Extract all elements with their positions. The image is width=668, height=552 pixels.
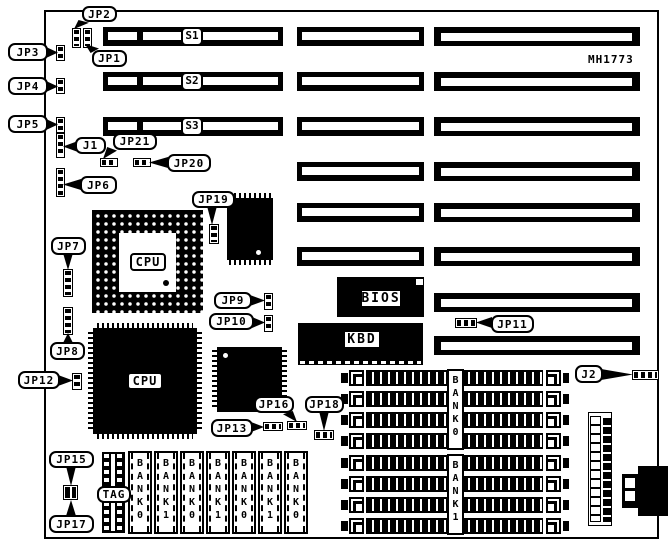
callout-jp7: JP7 [51,237,86,255]
jumper-jp7-block [63,269,73,297]
slot-s3-label: S3 [181,117,203,136]
sram-slot: BANK0 [284,451,308,534]
callout-jp20: JP20 [167,154,211,172]
slot-contact-stripe [143,32,278,40]
callout-jp12: JP12 [18,371,60,389]
power-connector [588,412,612,526]
slot-contact-stripe [108,32,137,40]
slot-bar [434,162,640,181]
keyboard-din-connector [638,466,668,516]
jumper-jp16-block [287,421,307,430]
qfp-pins [229,260,271,265]
jumper-jp2-block [72,28,81,48]
slot-bar [297,27,424,46]
slot-bar [297,162,424,181]
slot-bar [434,336,640,355]
bank-label: BANK1 [213,457,224,522]
bank-label: BANK0 [135,457,146,522]
slot-bar [434,117,640,136]
qfp-pins [97,434,193,439]
slot-contact-stripe [108,77,137,85]
qfp-pins [197,332,202,430]
cpu-chip-label: CPU [127,372,163,390]
callout-jp2: JP2 [82,6,117,22]
bank-label: BANK0 [187,457,198,522]
sram-slot: BANK0 [180,451,204,534]
slot-bar [434,247,640,266]
cpu-socket-label: CPU [130,253,166,271]
slot-contact-stripe [143,122,278,130]
callout-jp21: JP21 [113,133,157,150]
sram-slot: BANK0 [232,451,256,534]
part-number: MH1773 [588,53,634,66]
callout-jp10: JP10 [209,313,254,330]
pin1-marker [163,280,169,286]
callout-jp9: JP9 [214,292,252,309]
simm-bank0-label: BANK0 [447,369,464,450]
jumper-jp3-block [56,45,65,61]
slot-bar [434,27,640,46]
jumper-jp11-block [455,318,477,328]
slot-bar [297,72,424,91]
slot-bar [297,117,424,136]
jumper-j2-block [632,370,659,380]
keyboard-din-lugs [622,474,640,508]
bank-label: BANK1 [161,457,172,522]
jumper-jp13-block [263,422,283,431]
sram-slot: BANK1 [206,451,230,534]
callout-jp17: JP17 [49,515,94,533]
callout-j1: J1 [75,137,106,154]
callout-jp3: JP3 [8,43,48,61]
sram-slot: BANK1 [154,451,178,534]
jumper-jp15-jp17-block [63,485,78,500]
jumper-jp8-block [63,307,73,335]
jumper-j1-block [56,133,65,158]
jumper-jp18-block [314,430,334,440]
qfp-chip-small [227,198,273,260]
slot-bar [297,203,424,222]
callout-jp18: JP18 [305,396,344,413]
jumper-jp4-block [56,78,65,94]
slot-bar [434,72,640,91]
jumper-jp19-block [209,224,219,244]
slot-contact-stripe [143,77,278,85]
pin1-marker [223,353,228,358]
bank-label: BANK1 [265,457,276,522]
slot-bar [434,293,640,312]
callout-jp1: JP1 [92,50,127,67]
slot-bar [297,247,424,266]
callout-jp13: JP13 [211,419,253,437]
sram-slot: BANK0 [128,451,152,534]
callout-jp11: JP11 [491,315,534,333]
bank-label: BANK0 [239,457,250,522]
callout-jp6: JP6 [80,176,117,194]
slot-contact-stripe [108,122,137,130]
callout-jp19: JP19 [192,191,235,208]
jumper-jp5-block [56,117,65,133]
kbd-chip-label: KBD [344,331,380,348]
slot-s2-label: S2 [181,72,203,91]
callout-jp16: JP16 [254,396,294,413]
jumper-jp12-block [72,373,82,390]
isa-slot-s2: S2 [103,72,283,91]
bank-label: BANK0 [291,457,302,522]
jumper-jp6-block [56,168,65,197]
bios-chip-label: BIOS [361,290,401,307]
slot-s1-label: S1 [181,27,203,46]
callout-jp5: JP5 [8,115,48,133]
jumper-jp20-block [133,158,151,167]
simm-bank1-label: BANK1 [447,454,464,535]
jumper-jp9-block [264,293,273,310]
slot-bar [434,203,640,222]
callout-jp8: JP8 [50,342,85,360]
pin1-marker [256,250,261,255]
isa-slot-s1: S1 [103,27,283,46]
jumper-jp21-block [100,158,118,167]
callout-jp4: JP4 [8,77,48,95]
sram-slot: BANK1 [258,451,282,534]
jumper-jp10-block [264,315,273,332]
motherboard-diagram: MH1773 S1 S2 S3 CPU CPU [0,0,668,552]
callout-jp15: JP15 [49,451,94,468]
tag-socket-label: TAG [97,486,131,503]
callout-j2: J2 [575,365,603,383]
